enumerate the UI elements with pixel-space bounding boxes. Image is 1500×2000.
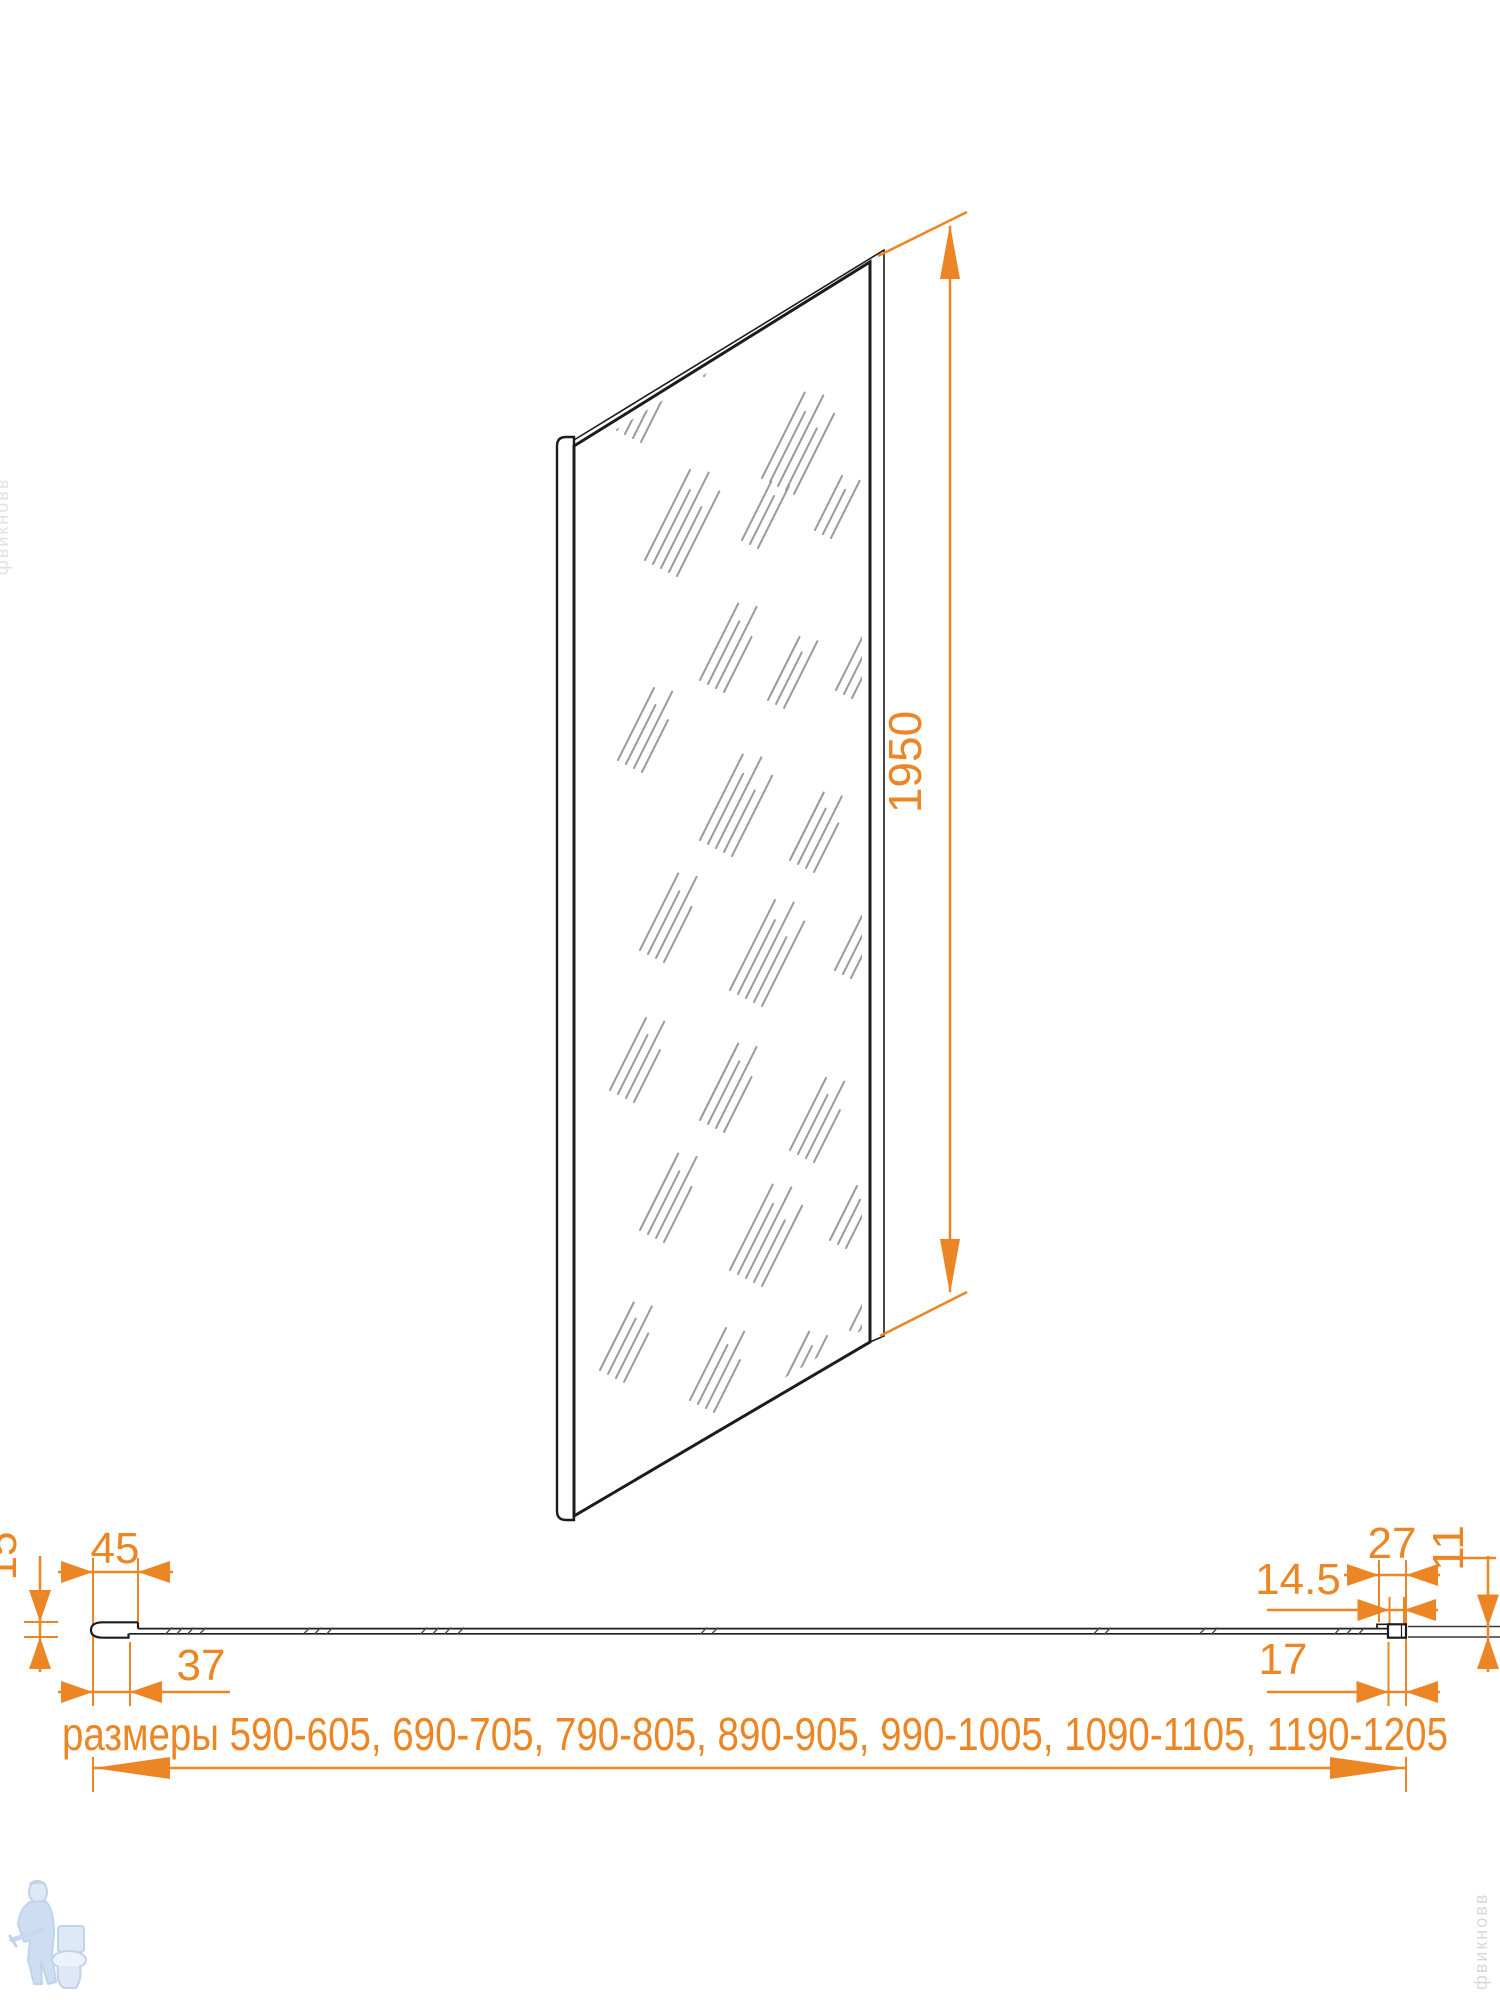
panel-perspective-view [557,250,892,1520]
bottom-dimensions: 45 15 37 27 14.5 17 11 размеры 590-605, … [0,1519,1499,1779]
dim-label-15: 15 [0,1532,26,1581]
toilet-tank [58,1926,84,1952]
dim-label-11: 11 [1424,1525,1473,1571]
technical-drawing: 45 15 37 27 14.5 17 11 размеры 590-605, … [0,0,1500,2000]
left-profile-section [91,1622,138,1637]
dim-label-45: 45 [91,1524,140,1573]
dim-label-17: 17 [1259,1635,1308,1684]
glass-panel [574,262,870,1516]
right-profile-section [1388,1624,1406,1637]
height-dimension: 1950 [878,212,967,1336]
plumber-body [18,1901,56,1984]
dim-label-37: 37 [177,1641,226,1690]
sizes-caption: размеры 590-605, 690-705, 790-805, 890-9… [62,1708,1448,1760]
toilet-base [58,1966,81,1988]
site-watermark-right: фвикновв [1471,1893,1491,1990]
dim-label-14-5: 14.5 [1255,1555,1341,1604]
site-watermark-left: фвикновв [0,478,12,575]
drawing-canvas: 45 15 37 27 14.5 17 11 размеры 590-605, … [0,0,1500,2000]
plumber-watermark [10,1881,86,1988]
dim-label-1950: 1950 [879,711,931,813]
wall-profile [557,437,574,1520]
dim-label-27: 27 [1368,1519,1417,1568]
